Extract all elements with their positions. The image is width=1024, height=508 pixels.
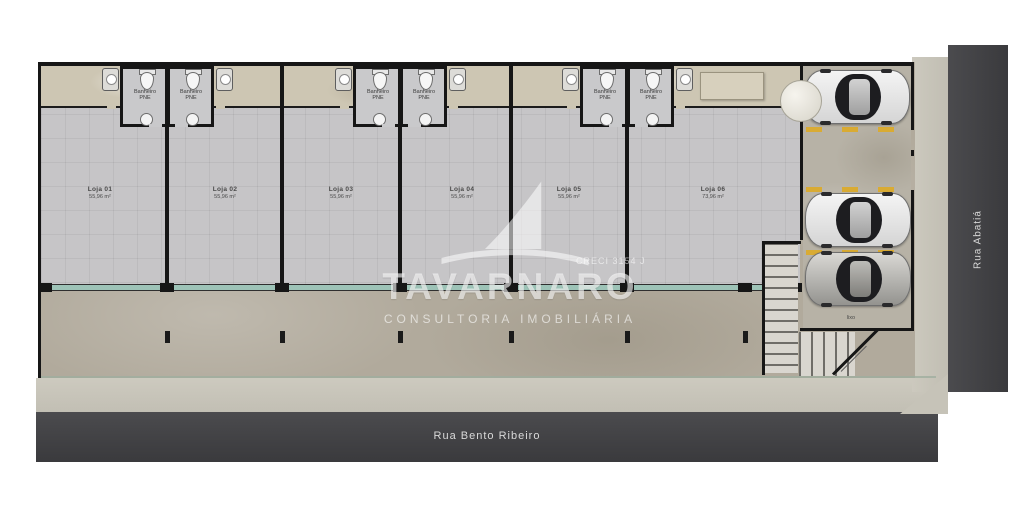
toilet-icon	[600, 72, 614, 90]
car-white-middle	[805, 193, 911, 247]
column-post	[398, 331, 403, 343]
bathroom-label: PNE	[139, 95, 150, 101]
car-wheel	[821, 251, 832, 255]
unit-label: Loja 03 55,96 m²	[301, 186, 381, 200]
street-label-right: Rua Abatiá	[948, 150, 1008, 330]
door-opening	[635, 124, 648, 127]
wall-stub	[160, 283, 174, 292]
car-wheel	[821, 303, 832, 307]
column-post	[165, 331, 170, 343]
car-wheel	[820, 69, 831, 73]
car-wheel	[821, 244, 832, 248]
car-wheel	[881, 121, 892, 125]
wall-stub	[38, 283, 52, 292]
wall-left	[38, 62, 41, 378]
car-wheel	[882, 244, 893, 248]
unit-label: Loja 01 55,96 m²	[60, 186, 140, 200]
wall-stub	[738, 283, 752, 292]
car-wheel	[820, 121, 831, 125]
wall-divider	[398, 66, 402, 288]
staircase-horizontal	[799, 332, 855, 376]
column-post	[625, 331, 630, 343]
unit-area: 55,96 m²	[301, 194, 381, 200]
laundry-tank-icon	[102, 68, 119, 91]
watermark-brand: TAVARNARO	[330, 266, 690, 308]
door-opening	[408, 124, 421, 127]
unit-area: 73,96 m²	[673, 194, 753, 200]
bathroom-label: PNE	[599, 95, 610, 101]
unit-area: 55,96 m²	[60, 194, 140, 200]
wall-stairwell-top	[762, 241, 801, 244]
sail-logo-icon	[440, 180, 590, 270]
wall-right-stub	[911, 150, 914, 156]
laundry-tank-icon	[216, 68, 233, 91]
unit-label: Loja 02 55,96 m²	[185, 186, 265, 200]
unit-name: Loja 01	[60, 186, 140, 193]
toilet-icon	[646, 72, 660, 90]
door-opening	[149, 124, 162, 127]
car-wheel	[881, 69, 892, 73]
door-opening	[216, 105, 225, 109]
toilet-icon	[186, 72, 200, 90]
laundry-tank-icon	[449, 68, 466, 91]
sidewalk-right	[912, 57, 948, 392]
wall-right	[911, 190, 914, 330]
bathroom-label: PNE	[372, 95, 383, 101]
unit-label: Loja 06 73,96 m²	[673, 186, 753, 200]
column-post	[280, 331, 285, 343]
tree-icon	[780, 80, 822, 122]
parking-stall-line	[806, 127, 906, 132]
door-opening	[676, 105, 685, 109]
car-roof	[850, 261, 871, 298]
door-opening	[449, 105, 458, 109]
car-silver-bottom	[805, 252, 911, 306]
laundry-tank-icon	[335, 68, 352, 91]
car-roof	[850, 202, 871, 239]
car-roof	[849, 79, 870, 116]
wall-divider	[625, 66, 629, 288]
door-opening	[107, 105, 116, 109]
curb-line	[38, 376, 936, 378]
wall-parking-bottom	[800, 328, 914, 331]
wall-divider	[165, 66, 169, 288]
wall-stairwell-left	[762, 241, 765, 375]
staircase-vertical	[765, 243, 798, 373]
bathroom-label: PNE	[645, 95, 656, 101]
bench	[700, 72, 764, 100]
unit-name: Loja 02	[185, 186, 265, 193]
door-opening	[567, 105, 576, 109]
car-wheel	[821, 192, 832, 196]
utility-room-label: lixo	[836, 315, 866, 321]
sidewalk-bottom	[36, 378, 938, 412]
door-opening	[609, 124, 622, 127]
bathroom-label: PNE	[418, 95, 429, 101]
door-opening	[175, 124, 188, 127]
car-wheel	[882, 251, 893, 255]
car-wheel	[882, 192, 893, 196]
toilet-icon	[373, 72, 387, 90]
toilet-icon	[140, 72, 154, 90]
toilet-icon	[419, 72, 433, 90]
column-post	[743, 331, 748, 343]
door-opening	[340, 105, 349, 109]
wall-top	[38, 62, 914, 66]
floor-plan-canvas: Rua Bento Ribeiro Rua Abatiá BanheiroPNE…	[0, 0, 1024, 508]
unit-area: 55,96 m²	[185, 194, 265, 200]
wall-stub	[275, 283, 289, 292]
wall-divider	[280, 66, 284, 288]
watermark-subtitle: CONSULTORIA IMOBILIÁRIA	[330, 312, 690, 326]
column-post	[509, 331, 514, 343]
laundry-tank-icon	[676, 68, 693, 91]
wall-right	[911, 62, 914, 130]
watermark-creci: CRECI 3154 J	[576, 256, 646, 266]
unit-name: Loja 06	[673, 186, 753, 193]
car-wheel	[882, 303, 893, 307]
door-opening	[382, 124, 395, 127]
laundry-tank-icon	[562, 68, 579, 91]
street-label-bottom: Rua Bento Ribeiro	[36, 430, 938, 442]
bathroom-label: PNE	[185, 95, 196, 101]
unit-name: Loja 03	[301, 186, 381, 193]
